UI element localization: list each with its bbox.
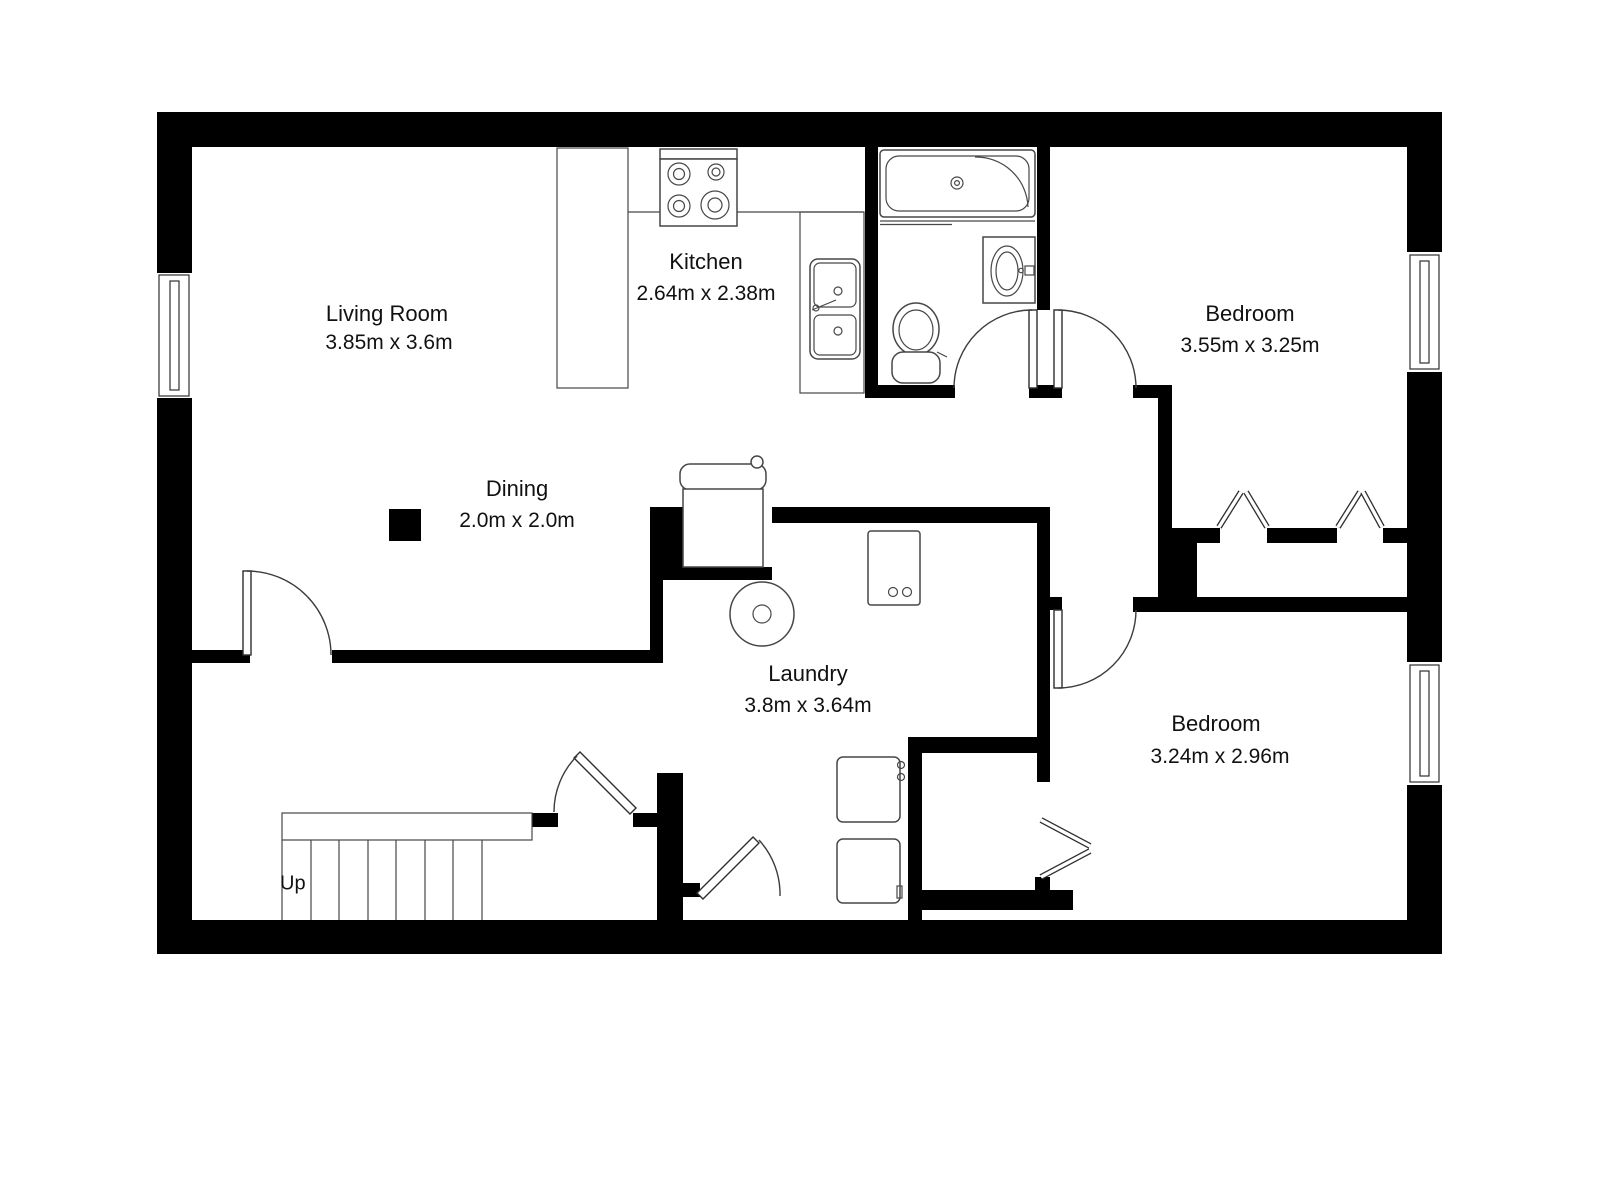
floor-plan-page: Up (0, 0, 1600, 1200)
wall-stair-stub-b (633, 813, 658, 827)
appliance-lower (837, 839, 902, 903)
door-under-stairs (554, 752, 636, 814)
wall-left-upper (157, 112, 192, 273)
wall-top (157, 112, 1442, 147)
wall-hall-nook (657, 773, 683, 920)
window-bedroom-1 (1410, 255, 1439, 369)
dims-kitchen: 2.64m x 2.38m (637, 282, 776, 305)
wall-closet2-top (908, 737, 1037, 753)
wall-bedroom2-top (1133, 597, 1407, 612)
stairs-up-label: Up (280, 873, 306, 895)
wall-bathroom-right (1037, 147, 1050, 310)
toilet (892, 303, 947, 383)
dims-living-room: 3.85m x 3.6m (325, 331, 452, 354)
wall-niche-bottom (650, 567, 772, 580)
wall-bedroom2-door-stub (1050, 597, 1062, 610)
washing-machine (680, 456, 766, 567)
wall-right-a (1407, 112, 1442, 252)
water-heater (730, 582, 794, 646)
wall-bedroom1-left (1158, 398, 1172, 528)
appliance-upper (837, 757, 905, 822)
label-living-room: Living Room (326, 301, 448, 326)
wall-closet1-b (1267, 528, 1337, 543)
dims-bedroom-1: 3.55m x 3.25m (1181, 334, 1320, 357)
dims-dining: 2.0m x 2.0m (459, 509, 575, 532)
stair-treads (282, 840, 482, 920)
dining-column (389, 509, 421, 541)
shower-screen (880, 221, 1035, 225)
wall-nook-right (908, 737, 922, 920)
door-bedroom-1 (1054, 310, 1136, 388)
bathroom-fixtures (880, 150, 1035, 383)
wall-bottom (157, 920, 1442, 954)
wall-living-hall-a (192, 650, 250, 663)
wall-nook-stub (683, 883, 700, 897)
door-bedroom-2 (1054, 610, 1136, 688)
window-left (159, 275, 189, 396)
floor-plan: Up (0, 0, 1600, 1200)
wall-bathroom-left (865, 147, 878, 398)
stove-4-burner (660, 149, 737, 226)
wall-bathroom-bottom (865, 385, 955, 398)
label-bedroom-1: Bedroom (1205, 301, 1294, 326)
label-kitchen: Kitchen (669, 249, 742, 274)
wall-closet1-c (1383, 528, 1407, 543)
wall-left-lower (157, 398, 192, 920)
wall-right-c (1407, 785, 1442, 920)
label-laundry: Laundry (768, 661, 848, 686)
wall-stair-stub-a (532, 813, 558, 827)
door-laundry-nook (697, 837, 780, 899)
dims-bedroom-2: 3.24m x 2.96m (1151, 745, 1290, 768)
double-kitchen-sink (810, 259, 860, 359)
wall-living-hall-b (332, 650, 663, 663)
window-bedroom-2 (1410, 665, 1439, 782)
bathtub (880, 150, 1035, 217)
stairs-up: Up (280, 813, 532, 920)
door-bathroom (954, 310, 1037, 388)
wall-laundry-top (772, 507, 1037, 523)
label-bedroom-2: Bedroom (1171, 711, 1260, 736)
stair-landing (282, 813, 532, 840)
closet-doors-bedroom-1 (1219, 492, 1382, 527)
door-living-room (243, 571, 331, 655)
closet-door-bedroom-2 (1041, 820, 1090, 877)
wall-bedroom1-stub (1133, 385, 1172, 398)
wall-hall-left (1037, 507, 1050, 782)
wall-closet2-bottom (920, 890, 1073, 910)
label-dining: Dining (486, 476, 548, 501)
vanity-sink (983, 237, 1035, 303)
cabinet (868, 531, 920, 605)
wall-right-b (1407, 372, 1442, 662)
dims-laundry: 3.8m x 3.64m (744, 694, 871, 717)
